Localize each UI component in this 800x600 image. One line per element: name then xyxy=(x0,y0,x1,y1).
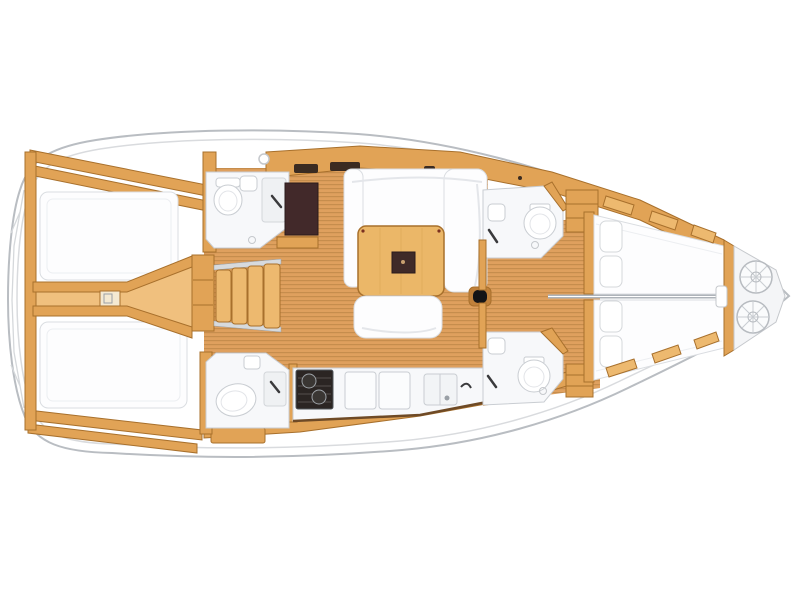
aft-berth xyxy=(40,322,187,408)
aft-berth xyxy=(40,192,178,280)
pillow xyxy=(600,301,622,332)
aft-head-starboard xyxy=(200,352,289,434)
stair-tread xyxy=(248,266,263,326)
deck-porthole xyxy=(259,154,269,164)
floorplan-canvas xyxy=(0,0,800,600)
hatch-latch xyxy=(100,291,120,306)
galley-bench xyxy=(211,428,265,443)
burner-icon xyxy=(312,390,326,404)
table-corner-pin xyxy=(437,229,440,232)
berth-headboard xyxy=(584,300,594,382)
sink-cover xyxy=(345,372,376,409)
pillow xyxy=(600,221,622,252)
chart-table xyxy=(285,183,318,235)
stair-tread xyxy=(232,268,247,324)
yacht-floorplan xyxy=(0,0,800,600)
sink-icon xyxy=(240,176,257,191)
stair-tread xyxy=(264,264,280,328)
pillow xyxy=(600,336,622,367)
rope-coil-icon xyxy=(740,261,772,293)
companionway xyxy=(192,255,281,332)
bow-section xyxy=(716,240,785,356)
berth-headboard xyxy=(584,212,594,294)
fitting-dot xyxy=(518,176,522,180)
rope-coil-icon xyxy=(737,301,769,333)
locker-hatch-hinge xyxy=(716,286,727,307)
companionway-panel xyxy=(192,255,214,331)
locker-slot xyxy=(294,164,318,173)
stair-tread xyxy=(216,270,231,322)
burner-icon xyxy=(302,374,316,388)
sink-cover xyxy=(379,372,410,409)
pillow xyxy=(600,256,622,287)
stair-treads xyxy=(216,264,280,328)
table-corner-pin xyxy=(361,229,364,232)
fridge-handle xyxy=(445,396,450,401)
stove-icon xyxy=(296,370,333,409)
nav-seat xyxy=(277,237,318,248)
bulkhead-post xyxy=(479,303,486,348)
sink-icon xyxy=(488,204,505,221)
table-inlay-dot xyxy=(401,260,405,264)
bulkhead-post xyxy=(479,240,486,290)
sink-icon xyxy=(488,338,505,354)
mast-section xyxy=(473,290,487,303)
sink-icon xyxy=(244,356,260,369)
